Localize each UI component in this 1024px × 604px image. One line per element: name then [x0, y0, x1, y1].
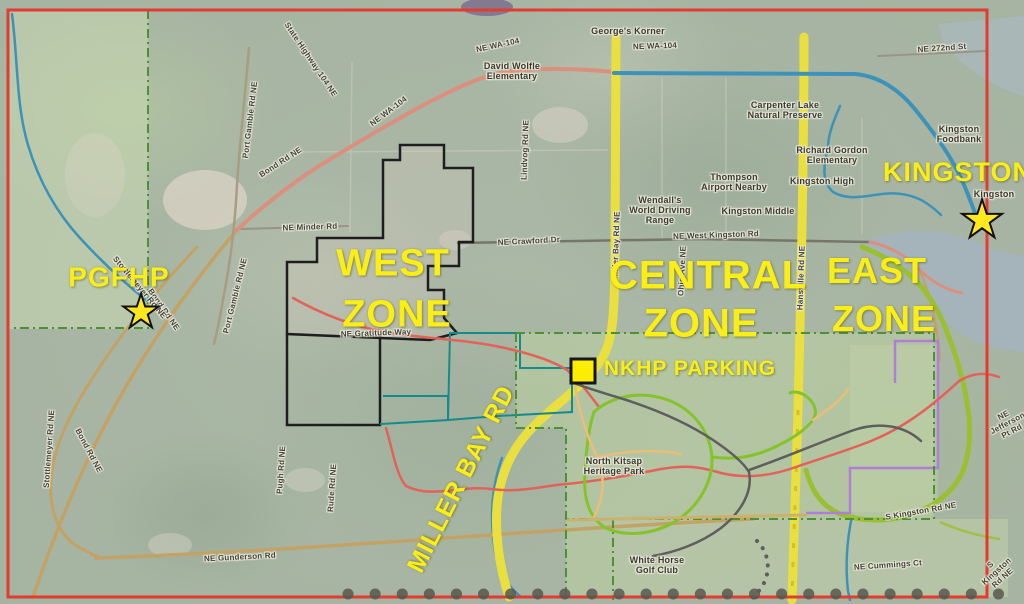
- pond: [461, 0, 513, 16]
- map-linework: [0, 0, 1024, 604]
- road-sr104-blue: [614, 73, 976, 216]
- boundary-west-zone-lobe: [287, 334, 380, 425]
- road-crawford-west-kingston: [457, 239, 870, 243]
- water-puget-sound: [938, 16, 1024, 96]
- map-frame: State Highway 104 NENE WA-104NE WA-104NE…: [0, 0, 1024, 604]
- road-minder: [240, 226, 348, 229]
- tint-white-horse: [613, 519, 1008, 597]
